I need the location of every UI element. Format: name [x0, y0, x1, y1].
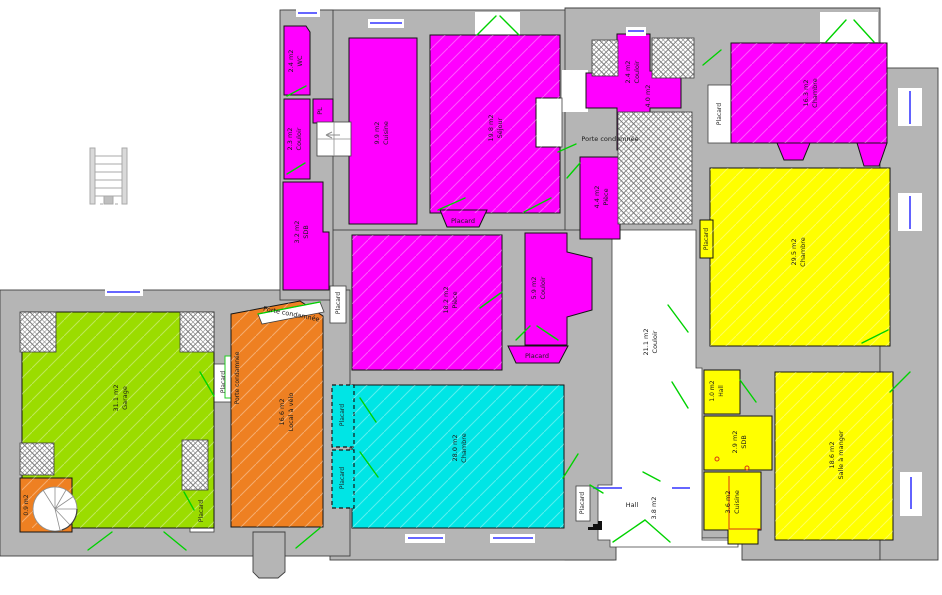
door-opening-sejour — [562, 70, 588, 112]
svg-text:9.9 m2: 9.9 m2 — [373, 122, 381, 145]
svg-text:16.6 m2: 16.6 m2 — [278, 398, 286, 425]
label-couloir-b: 2.4 m2Couloir — [624, 60, 641, 83]
svg-text:Chambre: Chambre — [460, 433, 468, 463]
label-sejour: 19.8 m2Séjour — [487, 114, 504, 141]
svg-text:Cuisine: Cuisine — [733, 490, 741, 514]
placard-label: Placard — [703, 228, 710, 250]
svg-text:Chambre: Chambre — [811, 78, 819, 108]
svg-text:21.1 m2: 21.1 m2 — [642, 328, 650, 355]
placard-label: Placard — [339, 404, 346, 426]
svg-text:Cuisine: Cuisine — [382, 121, 390, 145]
placard-label: Placard — [716, 103, 723, 125]
svg-text:29.5 m2: 29.5 m2 — [790, 238, 798, 265]
label-chambre-e: 29.5 m2Chambre — [790, 237, 807, 267]
ladder-icon — [90, 148, 127, 204]
svg-text:2.4 m2: 2.4 m2 — [287, 50, 295, 73]
svg-text:Hall: Hall — [626, 501, 639, 509]
placard-label: Placard — [525, 352, 549, 360]
svg-text:PL: PL — [316, 107, 324, 115]
label-pl: PL — [316, 107, 324, 115]
label-couloir-d: 5.9 m2Couloir — [530, 276, 547, 299]
room-piece-18 — [352, 235, 502, 370]
svg-text:Pièce: Pièce — [451, 291, 459, 308]
svg-text:19.8 m2: 19.8 m2 — [487, 114, 495, 141]
small-stair-icon — [317, 122, 351, 156]
south-wall-stub — [253, 532, 285, 578]
svg-text:Séjour: Séjour — [496, 117, 504, 138]
svg-text:Couloir: Couloir — [633, 60, 641, 83]
label-piece-44: 4.4 m2Pièce — [593, 186, 610, 209]
svg-text:18.2 m2: 18.2 m2 — [442, 286, 450, 313]
svg-text:SDB: SDB — [740, 435, 748, 449]
label-garage: 31.1 m2Garage — [112, 384, 129, 411]
placard-label: Placard — [451, 217, 475, 225]
label-escalier: 0.9 m2 — [23, 494, 30, 515]
svg-text:4.4 m2: 4.4 m2 — [593, 186, 601, 209]
svg-text:Couloir: Couloir — [539, 276, 547, 299]
svg-text:16.3 m2: 16.3 m2 — [802, 79, 810, 106]
svg-text:Garage: Garage — [121, 386, 129, 410]
svg-text:4.0 m2: 4.0 m2 — [644, 85, 652, 108]
svg-text:Local à vélo: Local à vélo — [287, 393, 295, 432]
room-local-velo — [231, 301, 323, 527]
svg-text:5.9 m2: 5.9 m2 — [530, 277, 538, 300]
placard-label: Placard — [335, 292, 342, 314]
svg-text:Chambre: Chambre — [799, 237, 807, 267]
label-cuisine-a: 9.9 m2Cuisine — [373, 121, 390, 145]
placard-label: Placard — [339, 467, 346, 489]
svg-text:2.3 m2: 2.3 m2 — [286, 128, 294, 151]
placard-label: Placard — [198, 500, 205, 522]
svg-text:0.9 m2: 0.9 m2 — [23, 494, 30, 515]
rooms — [20, 26, 893, 544]
sejour-recess — [536, 98, 562, 147]
svg-text:WC: WC — [296, 55, 304, 66]
svg-text:3.8 m2: 3.8 m2 — [650, 497, 658, 520]
label-couloir-c: 21.1 m2Couloir — [642, 328, 659, 355]
svg-text:31.1 m2: 31.1 m2 — [112, 384, 120, 411]
svg-text:3.2 m2: 3.2 m2 — [293, 221, 301, 244]
svg-text:Salle à manger: Salle à manger — [837, 430, 845, 479]
svg-text:2.4 m2: 2.4 m2 — [624, 61, 632, 84]
floor-plan-canvas: 2.4 m2WC PL 2.3 m2Couloir 3.2 m2SDB 9.9 … — [0, 0, 942, 595]
label-chambre-s: 28.0 m2Chambre — [451, 433, 468, 463]
svg-text:SDB: SDB — [302, 225, 310, 239]
svg-text:2.9 m2: 2.9 m2 — [731, 431, 739, 454]
floor-plan-drawing: 2.4 m2WC PL 2.3 m2Couloir 3.2 m2SDB 9.9 … — [0, 0, 942, 595]
placard-label: Placard — [579, 492, 586, 514]
svg-text:1.0 m2: 1.0 m2 — [709, 380, 716, 401]
svg-text:18.6 m2: 18.6 m2 — [828, 441, 836, 468]
svg-text:Couloir: Couloir — [651, 330, 659, 353]
label-couloir-a: 2.3 m2Couloir — [286, 127, 303, 150]
svg-text:Couloir: Couloir — [295, 127, 303, 150]
svg-text:Hall: Hall — [718, 385, 725, 397]
svg-text:Pièce: Pièce — [602, 188, 610, 205]
porte-condamnee-label: Porte condamnée — [581, 135, 638, 143]
label-piece-40: 4.0 m2 — [644, 85, 652, 108]
placard-label: Placard — [220, 371, 227, 393]
label-cuisine-b: 3.6 m2Cuisine — [724, 490, 741, 514]
porte-condamnee-label: Porte condamnée — [234, 351, 241, 404]
spiral-stair-icon — [33, 487, 77, 531]
svg-text:3.6 m2: 3.6 m2 — [724, 491, 732, 514]
label-chambre-ne: 16.3 m2Chambre — [802, 78, 819, 108]
svg-text:28.0 m2: 28.0 m2 — [451, 434, 459, 461]
